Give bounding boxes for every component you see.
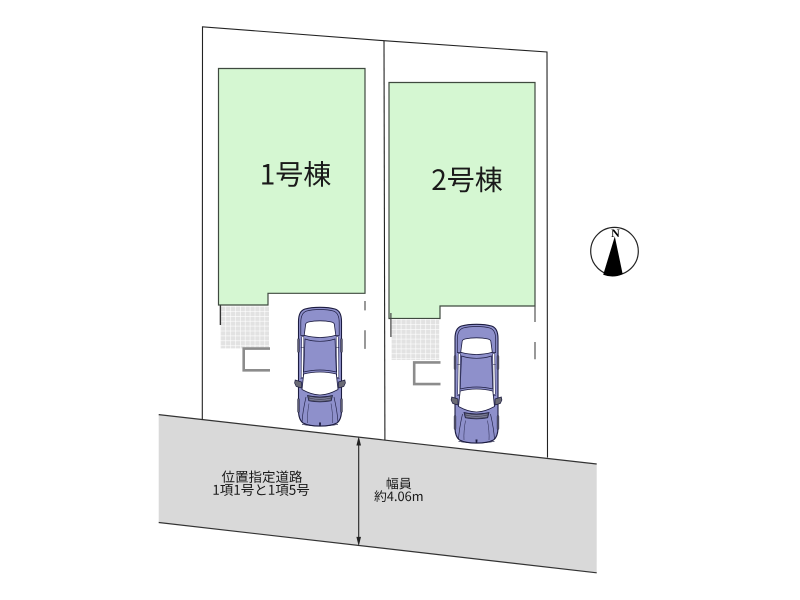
svg-text:N: N bbox=[611, 226, 620, 240]
